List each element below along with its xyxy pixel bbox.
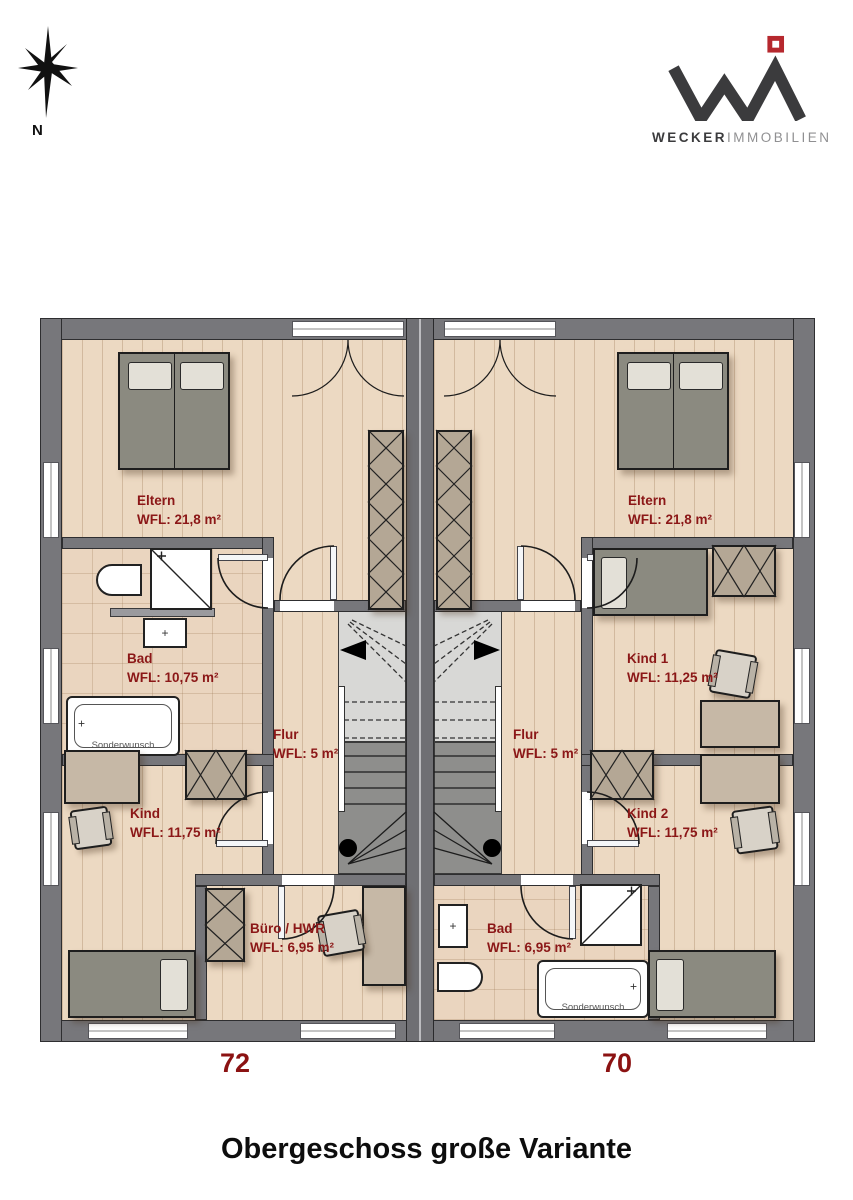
door-opening-bad-right	[521, 875, 573, 885]
logo-mark-icon	[666, 33, 816, 121]
staircase-left-upper	[338, 610, 406, 742]
room-label-buero-left: Büro / HWR WFL: 6,95 m²	[250, 920, 334, 958]
window	[292, 321, 404, 337]
bathtub: + Sonderwunsch	[537, 960, 649, 1018]
stair-handrail-left	[338, 686, 345, 812]
room-area: WFL: 21,8 m²	[137, 511, 221, 530]
window	[459, 1023, 555, 1039]
room-label-bad-right: Bad WFL: 6,95 m²	[487, 920, 571, 958]
pillow	[160, 959, 188, 1011]
staircase-left-lower	[338, 742, 406, 874]
bed-centerline	[174, 354, 175, 468]
room-area: WFL: 11,25 m²	[627, 669, 718, 688]
room-name: Bad	[487, 920, 571, 939]
desk	[64, 750, 140, 804]
toilet	[437, 962, 483, 992]
wardrobe	[185, 750, 247, 800]
wall-party-joint	[419, 319, 421, 1041]
door-leaf	[216, 840, 268, 847]
window	[667, 1023, 767, 1039]
window	[43, 462, 59, 538]
window	[794, 648, 810, 724]
single-bed	[68, 950, 196, 1018]
plan-title: Obergeschoss große Variante	[0, 1133, 853, 1166]
floorplan-page: N WECKERIMMOBILIEN	[0, 0, 853, 1200]
window	[444, 321, 556, 337]
room-area: WFL: 10,75 m²	[127, 669, 219, 688]
staircase-right-upper	[434, 610, 502, 742]
room-area: WFL: 6,95 m²	[487, 939, 571, 958]
room-name: Bad	[127, 650, 219, 669]
washbasin: +	[438, 904, 468, 948]
room-label-bad-left: Bad WFL: 10,75 m²	[127, 650, 219, 688]
door-opening-bad-left	[263, 558, 273, 608]
logo-word-light: IMMOBILIEN	[727, 130, 832, 145]
single-bed	[593, 548, 708, 616]
room-label-flur-left: Flur WFL: 5 m²	[273, 726, 338, 764]
logo-word-bold: WECKER	[652, 130, 727, 145]
window	[794, 812, 810, 886]
logo-wordmark: WECKERIMMOBILIEN	[652, 130, 830, 145]
pillow	[128, 362, 172, 390]
door-opening-kind-left	[263, 792, 273, 844]
unit-number-left: 72	[190, 1048, 280, 1079]
office-chair	[69, 806, 112, 851]
wardrobe	[368, 430, 404, 610]
staircase-right-lower	[434, 742, 502, 874]
single-bed	[648, 950, 776, 1018]
room-area: WFL: 6,95 m²	[250, 939, 334, 958]
door-leaf	[218, 554, 268, 561]
tub-plus-mark: +	[630, 981, 637, 993]
room-name: Büro / HWR	[250, 920, 334, 939]
room-label-eltern-left: Eltern WFL: 21,8 m²	[137, 492, 221, 530]
bed-centerline	[673, 354, 674, 468]
toilet	[96, 564, 142, 596]
window	[794, 462, 810, 538]
pillow	[601, 557, 627, 609]
room-name: Kind	[130, 805, 221, 824]
room-label-kind-left: Kind WFL: 11,75 m²	[130, 805, 221, 843]
door-opening-buero-left	[282, 875, 334, 885]
room-label-kind1-right: Kind 1 WFL: 11,25 m²	[627, 650, 718, 688]
room-area: WFL: 5 m²	[273, 745, 338, 764]
wardrobe	[436, 430, 472, 610]
washbasin: +	[143, 618, 187, 648]
window	[43, 648, 59, 724]
room-area: WFL: 5 m²	[513, 745, 578, 764]
door-leaf	[330, 546, 337, 600]
brand-logo: WECKERIMMOBILIEN	[652, 33, 830, 145]
compass-rose-icon	[12, 22, 84, 122]
wardrobe	[205, 888, 245, 962]
stair-handrail-right	[495, 686, 502, 812]
door-opening-kind1-right	[582, 558, 592, 608]
bathtub: + Sonderwunsch	[66, 696, 180, 756]
tub-plus-mark: +	[78, 718, 85, 730]
room-area: WFL: 21,8 m²	[628, 511, 712, 530]
desk	[700, 754, 780, 804]
room-name: Flur	[273, 726, 338, 745]
pillow	[627, 362, 671, 390]
door-opening-eltern-right	[521, 601, 575, 611]
compass-north-label: N	[32, 122, 43, 139]
room-name: Flur	[513, 726, 578, 745]
room-name: Kind 1	[627, 650, 718, 669]
bathtub-option-label: Sonderwunsch	[539, 1002, 647, 1013]
wardrobe	[712, 545, 776, 597]
pillow	[180, 362, 224, 390]
desk	[362, 886, 406, 986]
pillow	[679, 362, 723, 390]
room-area: WFL: 11,75 m²	[627, 824, 718, 843]
window	[88, 1023, 188, 1039]
room-name: Kind 2	[627, 805, 718, 824]
shower	[580, 884, 642, 946]
unit-number-right: 70	[572, 1048, 662, 1079]
basin-plus-mark: +	[161, 627, 168, 639]
pillow	[656, 959, 684, 1011]
double-bed	[118, 352, 230, 470]
desk	[700, 700, 780, 748]
basin-plus-mark: +	[449, 920, 456, 932]
room-label-kind2-right: Kind 2 WFL: 11,75 m²	[627, 805, 718, 843]
room-name: Eltern	[628, 492, 712, 511]
door-leaf	[517, 546, 524, 600]
room-label-eltern-right: Eltern WFL: 21,8 m²	[628, 492, 712, 530]
shower	[150, 548, 212, 610]
double-bed	[617, 352, 729, 470]
room-label-flur-right: Flur WFL: 5 m²	[513, 726, 578, 764]
room-name: Eltern	[137, 492, 221, 511]
window	[300, 1023, 396, 1039]
office-chair	[731, 805, 779, 854]
door-opening-eltern-left	[280, 601, 334, 611]
room-area: WFL: 11,75 m²	[130, 824, 221, 843]
window	[43, 812, 59, 886]
wardrobe	[590, 750, 654, 800]
